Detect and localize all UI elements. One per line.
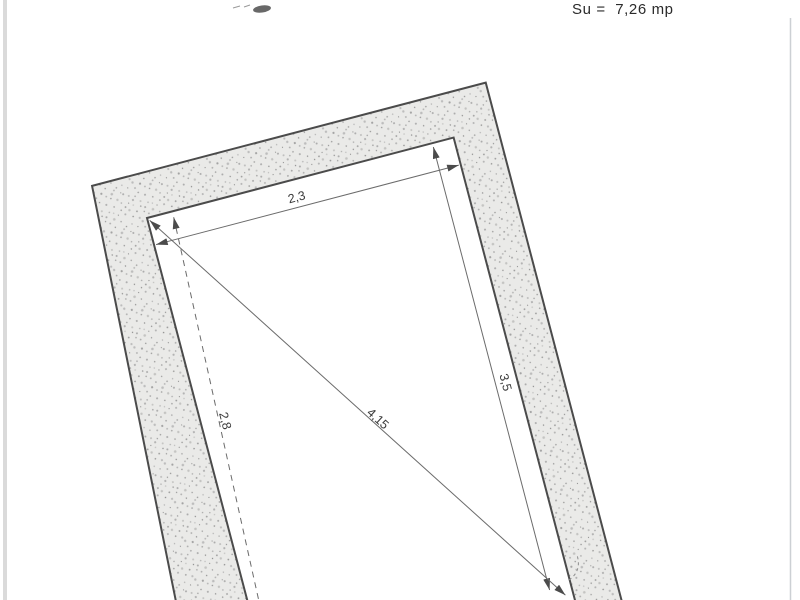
floor-plan-canvas: 2,3 3,5 4,15 2,8 <box>0 0 800 600</box>
page-edge-shadow <box>3 0 7 600</box>
plan-rotated-group: 2,3 3,5 4,15 2,8 <box>60 83 632 600</box>
scanned-document-page: 2,3 3,5 4,15 2,8 Su = 7,26 mp <box>0 0 800 600</box>
area-annotation: Su = 7,26 mp <box>572 1 674 18</box>
ink-smudge <box>253 4 272 13</box>
faint-scribble-mark <box>233 5 250 8</box>
